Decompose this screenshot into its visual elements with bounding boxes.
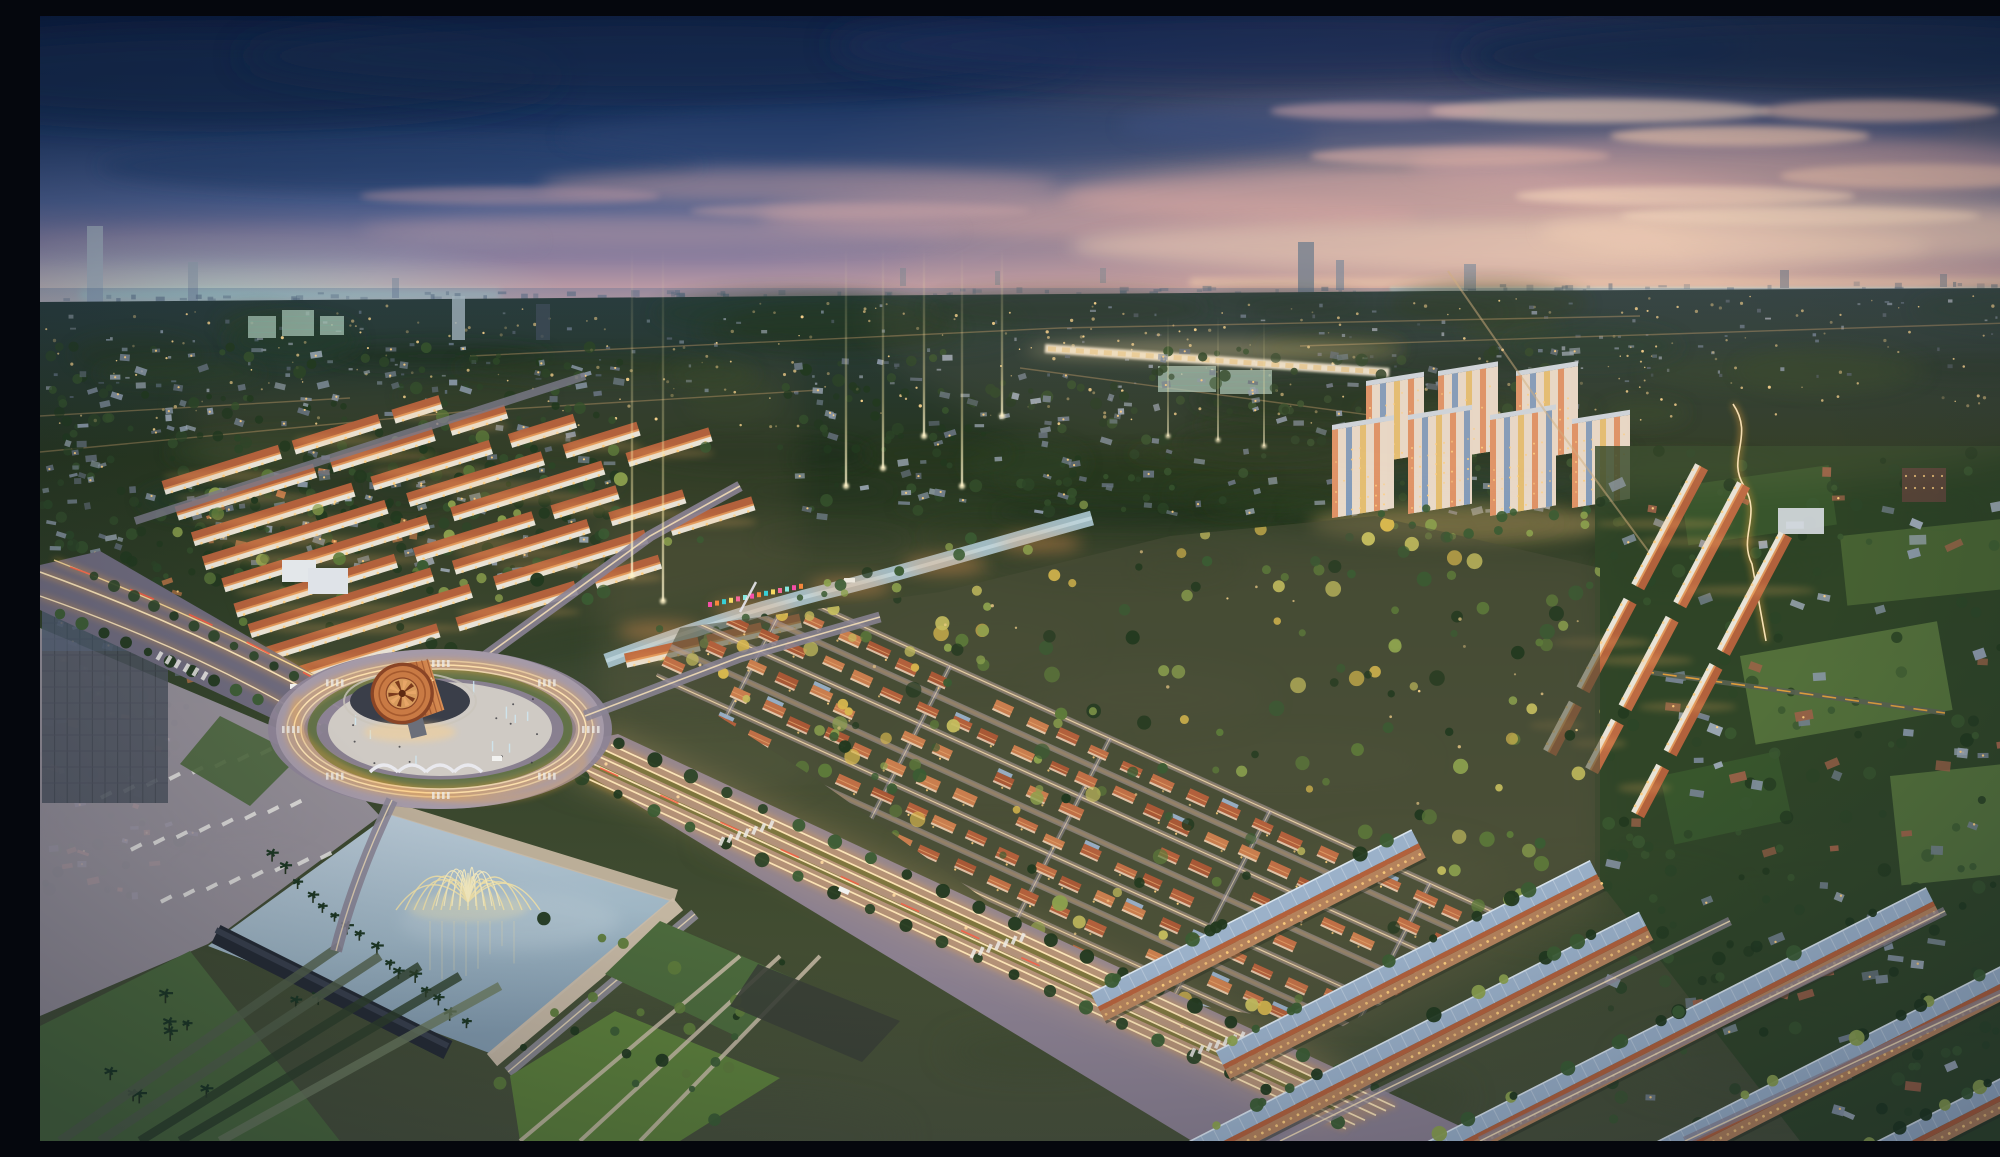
render-canvas [40, 16, 2000, 1141]
aerial-township-render [40, 16, 2000, 1141]
